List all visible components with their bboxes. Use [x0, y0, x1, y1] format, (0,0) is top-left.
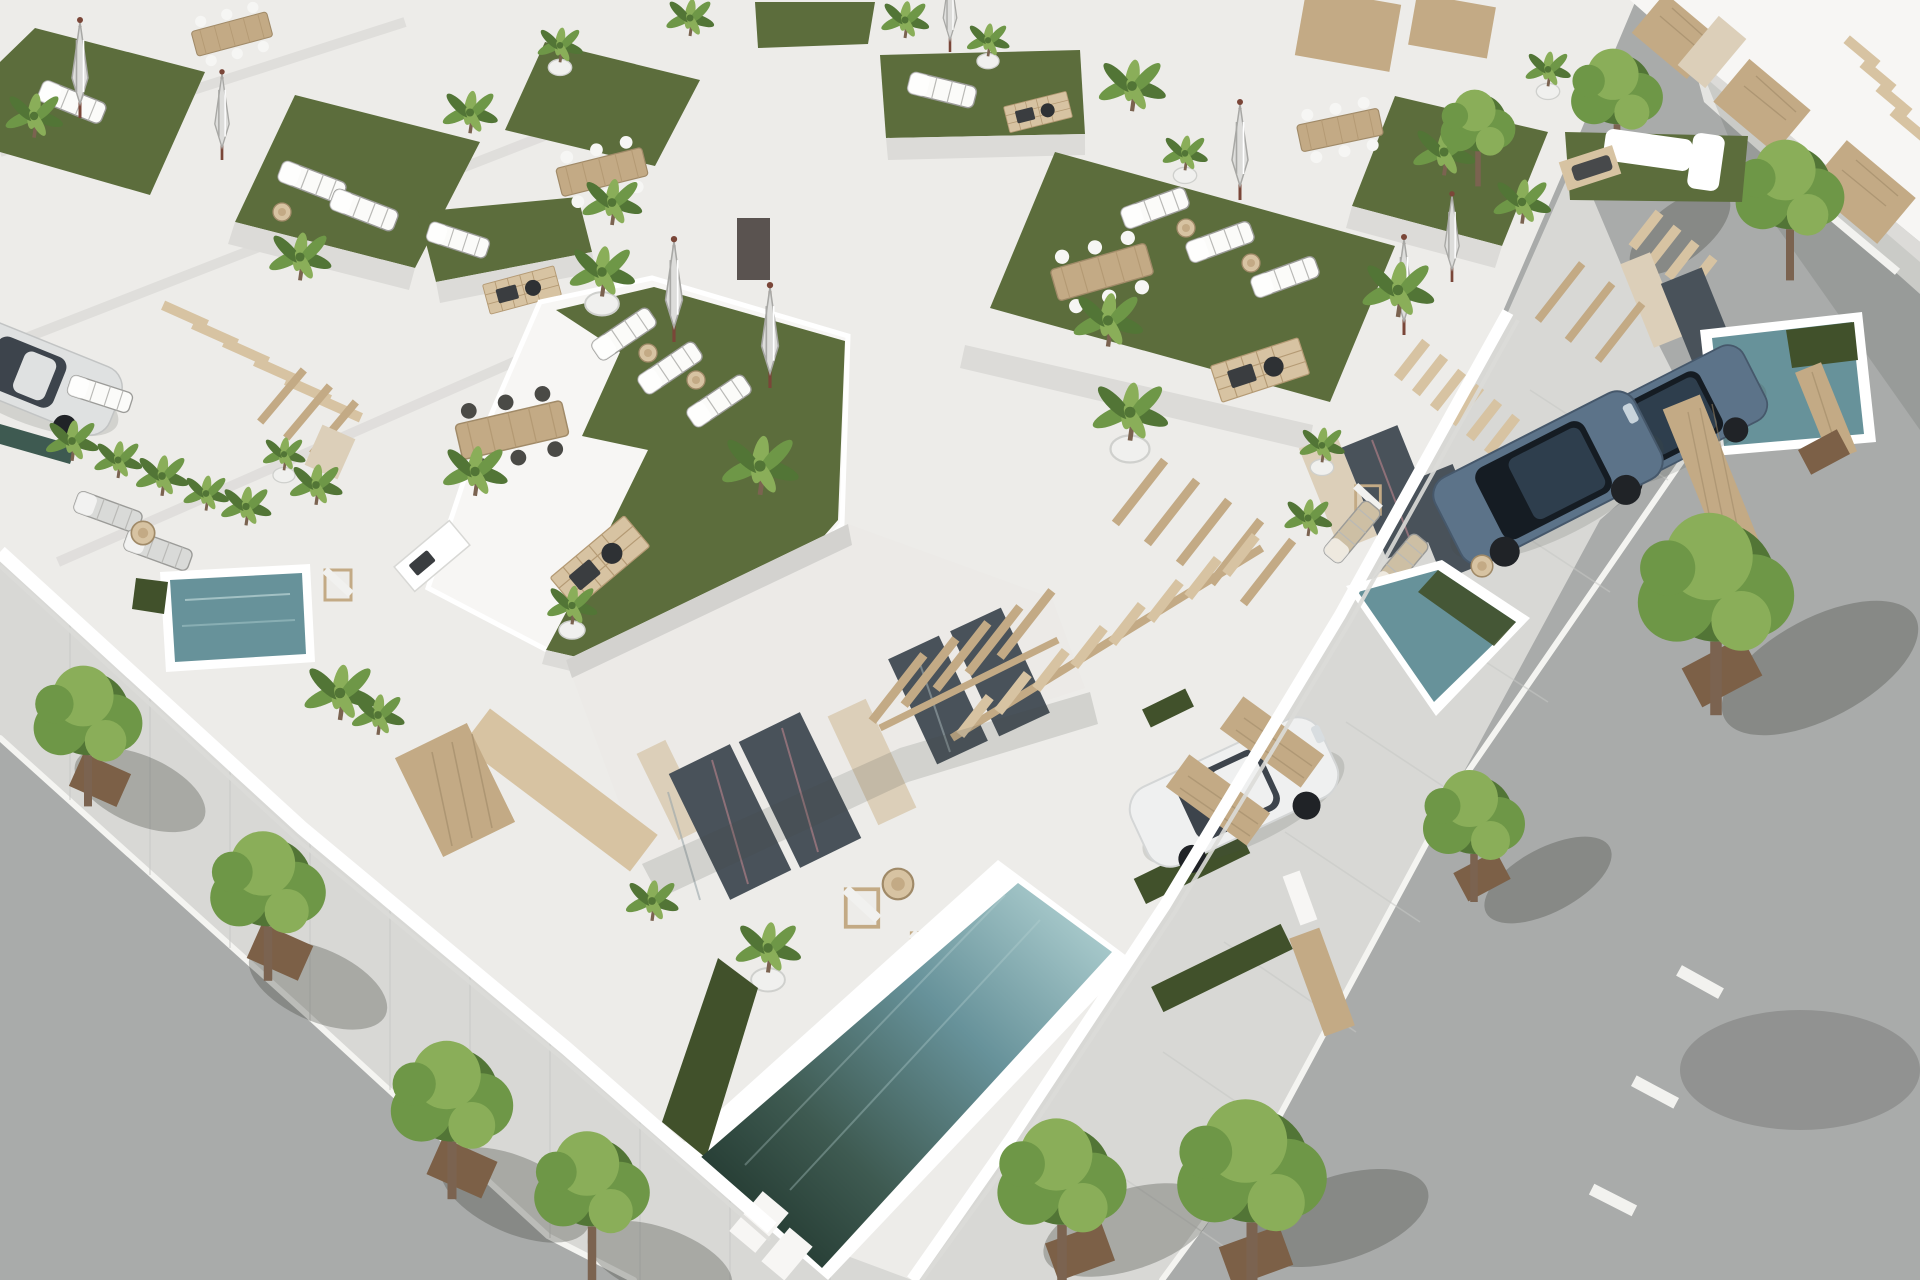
side-table [883, 869, 914, 900]
side-table [131, 521, 154, 544]
side-table [1471, 555, 1493, 577]
side-table [1242, 254, 1260, 272]
side-table [639, 344, 657, 362]
side-table [1177, 219, 1195, 237]
scene-canvas [0, 0, 1920, 1280]
roof-access-door [737, 218, 770, 280]
side-table [687, 371, 705, 389]
architectural-render [0, 0, 1920, 1280]
side-table [273, 203, 291, 221]
roof-lawn [755, 2, 875, 48]
